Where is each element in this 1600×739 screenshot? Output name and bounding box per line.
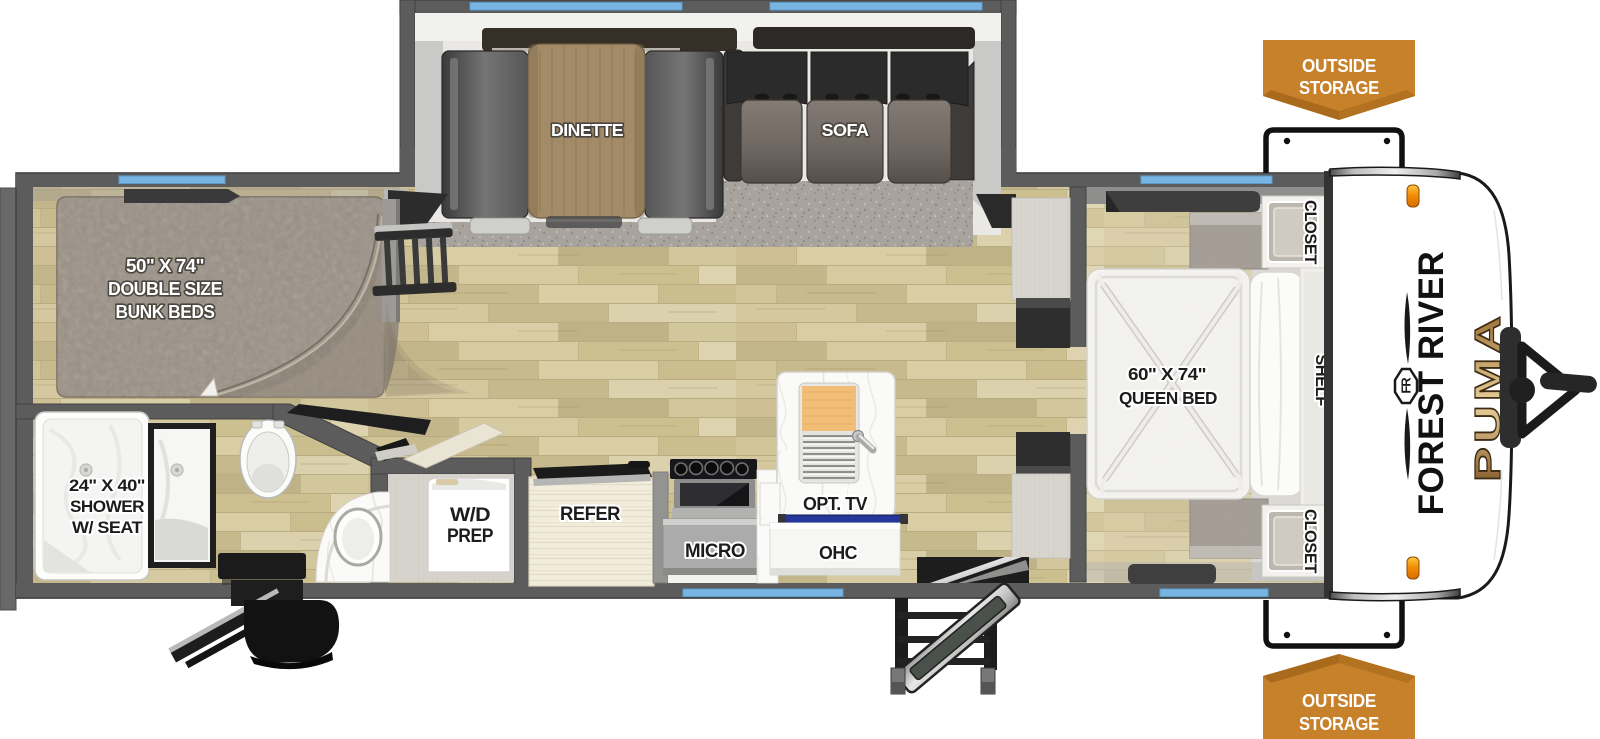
svg-text:OUTSIDE: OUTSIDE xyxy=(1302,56,1376,76)
svg-text:CLOSET: CLOSET xyxy=(1301,200,1319,264)
svg-text:FOREST RIVER: FOREST RIVER xyxy=(1412,251,1451,516)
svg-text:SHOWER: SHOWER xyxy=(70,497,144,516)
svg-text:BUNK BEDS: BUNK BEDS xyxy=(116,301,215,322)
svg-text:DOUBLE SIZE: DOUBLE SIZE xyxy=(108,278,222,299)
svg-text:60" X 74": 60" X 74" xyxy=(1128,364,1206,384)
svg-text:W/D: W/D xyxy=(450,505,490,526)
svg-text:OUTSIDE: OUTSIDE xyxy=(1302,691,1376,711)
svg-text:DINETTE: DINETTE xyxy=(551,120,623,140)
svg-text:OHC: OHC xyxy=(819,542,857,563)
svg-text:W/ SEAT: W/ SEAT xyxy=(72,518,143,537)
svg-text:SOFA: SOFA xyxy=(822,120,870,140)
svg-text:STORAGE: STORAGE xyxy=(1299,78,1379,98)
svg-text:24" X 40": 24" X 40" xyxy=(69,476,145,495)
svg-text:REFER: REFER xyxy=(560,504,621,525)
svg-text:MICRO: MICRO xyxy=(685,541,745,562)
svg-text:PREP: PREP xyxy=(447,526,494,547)
svg-text:QUEEN BED: QUEEN BED xyxy=(1119,388,1217,408)
svg-text:STORAGE: STORAGE xyxy=(1299,714,1379,734)
svg-text:OPT. TV: OPT. TV xyxy=(803,493,868,514)
svg-text:CLOSET: CLOSET xyxy=(1301,509,1319,573)
svg-text:50" X 74": 50" X 74" xyxy=(126,255,204,276)
